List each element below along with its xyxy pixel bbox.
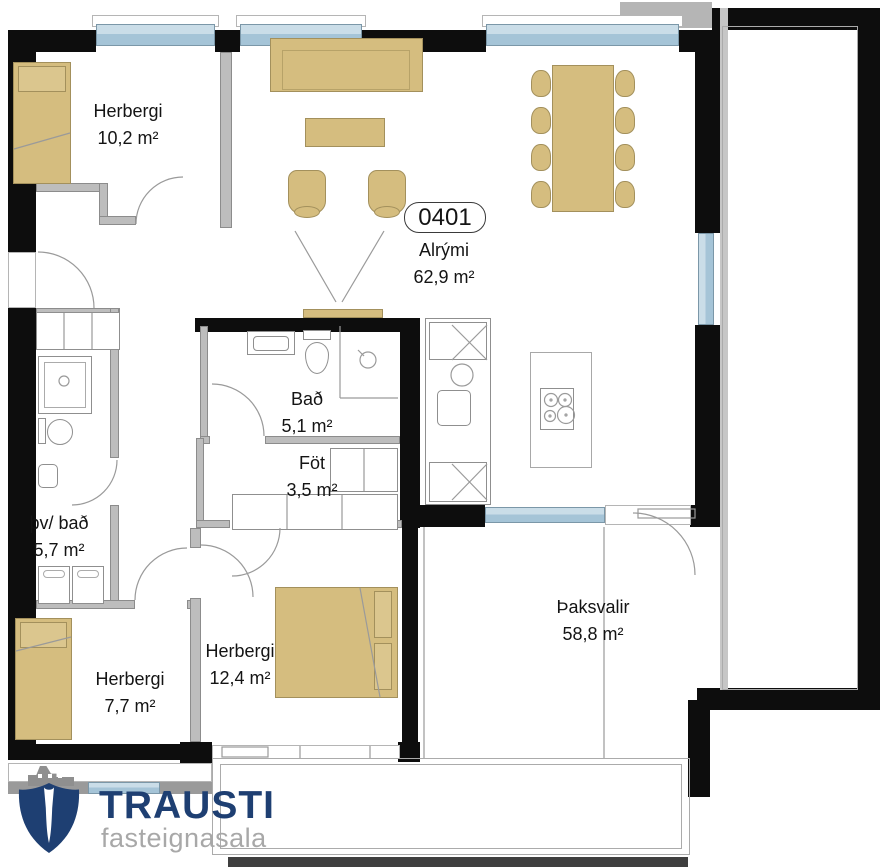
- room-area: 12,4 m²: [180, 665, 300, 692]
- terrace-outline-right: [722, 26, 858, 690]
- floor-plan: Herbergi 10,2 m² 0401 Alrými 62,9 m² Bað…: [0, 0, 887, 867]
- unit-number: 0401: [418, 204, 471, 232]
- terrace-wall-step-h: [697, 688, 880, 710]
- terrace-outline-bottom-inner: [220, 764, 682, 849]
- laundry-sink: [38, 464, 58, 488]
- room-name: Herbergi: [58, 98, 198, 125]
- partition-bath-left: [200, 326, 208, 438]
- partition-fot-left: [196, 438, 204, 528]
- room-label-thaksvalir: Þaksvalir 58,8 m²: [523, 594, 663, 648]
- entrance-door-opening: [8, 252, 36, 308]
- entrance-door-arc: [38, 252, 94, 308]
- room-label-alrymi: Alrými 62,9 m²: [384, 237, 504, 291]
- room-area: 5,7 m²: [9, 537, 109, 564]
- wall-segment-bedroom-right: [402, 528, 418, 754]
- bath-sink-basin: [253, 336, 289, 351]
- window-living-bottom: [485, 507, 605, 523]
- sofa-seat-line: [282, 50, 410, 90]
- wall-segment-right-lower: [695, 325, 720, 510]
- chair-icon: [615, 144, 635, 171]
- stove-icon: [540, 388, 574, 430]
- wall-segment-right-upper: [695, 30, 720, 233]
- dryer-lid: [77, 570, 99, 578]
- coffee-table-icon: [305, 118, 385, 147]
- laundry-door-arc: [72, 460, 117, 505]
- tv-view-line: [295, 231, 336, 302]
- kitchen-sink: [437, 390, 471, 426]
- chair-icon: [531, 70, 551, 97]
- partition-bedroom1-bottom: [36, 183, 108, 192]
- room-area: 58,8 m²: [523, 621, 663, 648]
- toilet-icon: [303, 330, 331, 340]
- partition-bedroom1-right: [220, 52, 232, 228]
- room-name: Herbergi: [60, 666, 200, 693]
- dining-table-icon: [552, 65, 614, 212]
- room-area: 62,9 m²: [384, 264, 504, 291]
- kitchen-cabinet-bottom: [429, 462, 487, 502]
- armchair-icon: [288, 170, 326, 214]
- laundry-wardrobe: [36, 312, 120, 350]
- room-name: Þaksvalir: [523, 594, 663, 621]
- kitchen-cabinet-top: [429, 322, 487, 360]
- bedroom3-door-arc: [201, 545, 253, 597]
- room-name: Bað: [247, 386, 367, 413]
- window-top-3: [486, 24, 679, 46]
- laundry-toilet-bowl: [47, 419, 73, 445]
- wall-segment-bath-top: [195, 318, 400, 332]
- laundry-toilet-tank: [38, 418, 46, 444]
- pillow-icon: [374, 643, 392, 690]
- room-label-bad: Bað 5,1 m²: [247, 386, 367, 440]
- armchair-icon: [368, 170, 406, 214]
- silhouette-window-dot: [38, 774, 42, 778]
- closet-door-arc: [232, 528, 280, 576]
- brand-tagline: fasteignasala: [101, 823, 267, 854]
- pillow-icon: [18, 66, 66, 92]
- tv-view-line: [342, 231, 384, 302]
- wall-segment-mid-vertical: [400, 318, 420, 528]
- silhouette-window-dot: [58, 774, 62, 778]
- washer-lid: [43, 570, 65, 578]
- room-label-tv-bad: þv/ bað 5,7 m²: [9, 510, 109, 564]
- window-top-1: [96, 24, 215, 46]
- room-area: 3,5 m²: [252, 477, 372, 504]
- pillow-icon: [20, 622, 67, 648]
- terrace-door-opening: [605, 505, 691, 525]
- brand-name: TRAUSTI: [99, 784, 275, 828]
- terrace-bottom-bar: [228, 857, 688, 867]
- trausti-shield-icon: [16, 782, 82, 856]
- room-area: 10,2 m²: [58, 125, 198, 152]
- chair-icon: [615, 181, 635, 208]
- chair-icon: [531, 181, 551, 208]
- chair-icon: [615, 70, 635, 97]
- bedroom2-door-arc: [135, 548, 187, 600]
- wall-segment-bottom-left: [8, 744, 183, 760]
- unit-number-badge: 0401: [404, 202, 486, 233]
- window-bedroom-bottom: [212, 745, 400, 759]
- room-name: Föt: [252, 450, 372, 477]
- chair-icon: [615, 107, 635, 134]
- tv-sideboard-icon: [303, 309, 383, 318]
- partition-step-h: [99, 216, 136, 225]
- room-label-herbergi-124: Herbergi 12,4 m²: [180, 638, 300, 692]
- silhouette-window-dot: [48, 774, 52, 778]
- wall-segment-door-corner: [690, 505, 720, 527]
- pillow-icon: [374, 591, 392, 638]
- room-area: 5,1 m²: [247, 413, 367, 440]
- chair-icon: [531, 107, 551, 134]
- room-label-fot: Föt 3,5 m²: [252, 450, 372, 504]
- window-right-vertical: [698, 233, 714, 325]
- partition-hall-bedroom3-a: [190, 528, 201, 548]
- room-area: 7,7 m²: [60, 693, 200, 720]
- shower-head-icon: [360, 352, 376, 368]
- terrace-wall-step-v: [688, 700, 710, 797]
- toilet-bowl: [305, 342, 329, 374]
- room-name: þv/ bað: [9, 510, 109, 537]
- room-label-herbergi-77: Herbergi 7,7 m²: [60, 666, 200, 720]
- terrace-wall-right: [857, 8, 880, 692]
- wall-segment: [215, 30, 240, 52]
- partition-fot-bottom-a: [196, 520, 230, 528]
- wall-segment-bottom-corner: [180, 742, 212, 764]
- room-name: Herbergi: [180, 638, 300, 665]
- partition-laundry-right-b: [110, 505, 119, 605]
- room-label-herbergi-102: Herbergi 10,2 m²: [58, 98, 198, 152]
- laundry-shower-inner: [44, 362, 86, 408]
- room-name: Alrými: [384, 237, 504, 264]
- bedroom1-door-arc: [136, 177, 183, 224]
- chair-icon: [531, 144, 551, 171]
- wall-segment-living-bottom: [420, 505, 485, 527]
